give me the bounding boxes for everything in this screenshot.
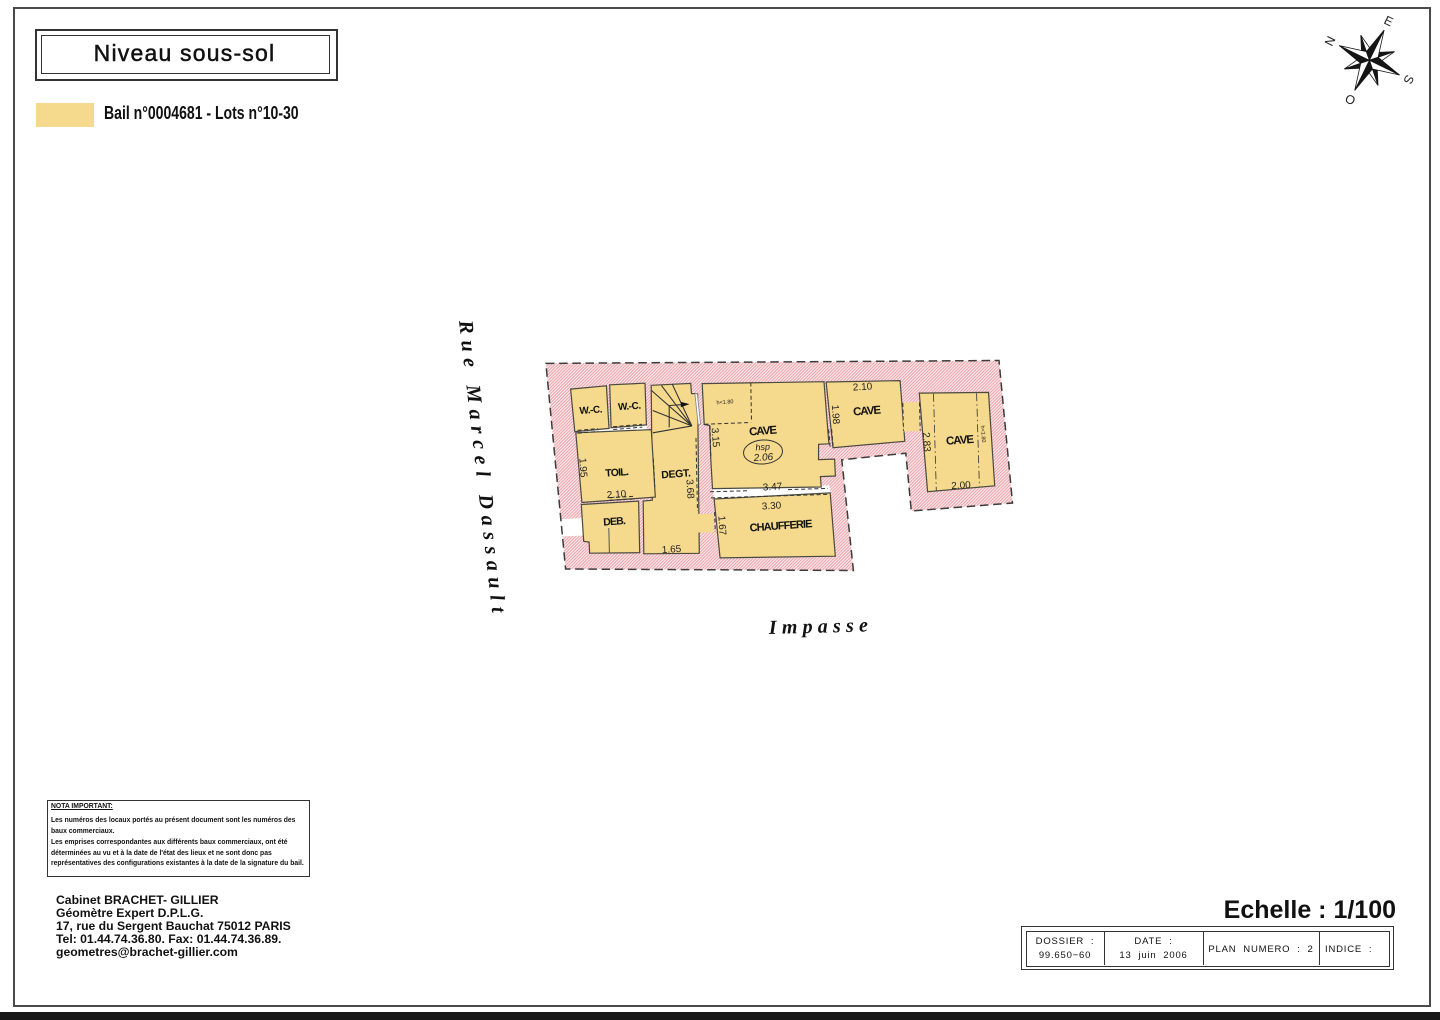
svg-text:3.68: 3.68: [683, 479, 695, 500]
svg-text:3.30: 3.30: [761, 500, 782, 512]
svg-text:1.95: 1.95: [576, 458, 588, 479]
svg-text:W.-C.: W.-C.: [579, 404, 603, 417]
svg-text:h<1.80: h<1.80: [716, 399, 733, 406]
svg-text:W.-C.: W.-C.: [618, 401, 642, 414]
svg-text:1.65: 1.65: [661, 544, 682, 556]
svg-text:2.10: 2.10: [852, 381, 873, 393]
svg-text:1.98: 1.98: [829, 404, 841, 425]
svg-text:2.10: 2.10: [606, 489, 627, 501]
svg-text:TOIL.: TOIL.: [605, 466, 629, 480]
svg-text:h<1.80: h<1.80: [979, 425, 986, 442]
svg-text:CAVE: CAVE: [853, 405, 882, 419]
svg-text:2.00: 2.00: [951, 480, 972, 492]
svg-text:Rue Marcel Dassault: Rue Marcel Dassault: [454, 318, 510, 620]
svg-text:O: O: [1343, 91, 1358, 108]
svg-text:DEB.: DEB.: [603, 515, 626, 529]
svg-text:1.67: 1.67: [715, 515, 727, 536]
svg-text:2.83: 2.83: [920, 432, 932, 453]
svg-text:3.47: 3.47: [762, 481, 783, 493]
svg-text:hsp: hsp: [755, 442, 770, 453]
svg-text:3.15: 3.15: [709, 427, 721, 448]
svg-text:CAVE: CAVE: [749, 425, 778, 439]
svg-text:CAVE: CAVE: [946, 434, 975, 448]
svg-text:2.06: 2.06: [752, 452, 774, 464]
svg-text:E: E: [1382, 13, 1396, 29]
svg-text:N: N: [1322, 34, 1339, 48]
svg-text:S: S: [1400, 73, 1416, 87]
svg-text:Impasse: Impasse: [768, 614, 874, 639]
